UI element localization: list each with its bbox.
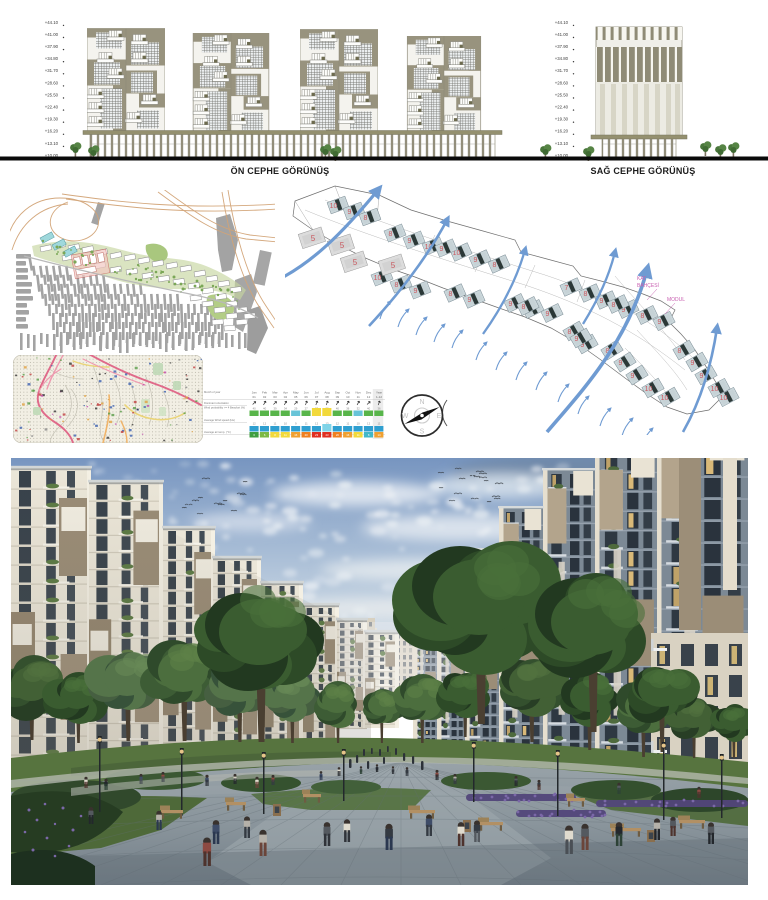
svg-text:+41.00: +41.00 <box>555 32 569 37</box>
svg-text:03: 03 <box>273 395 277 399</box>
svg-text:11: 11 <box>274 422 277 426</box>
svg-text:+19.30: +19.30 <box>45 117 59 122</box>
svg-text:12: 12 <box>367 395 371 399</box>
svg-text:+16.20: +16.20 <box>555 129 569 134</box>
svg-text:+31.70: +31.70 <box>555 68 569 73</box>
svg-text:+25.50: +25.50 <box>45 92 59 97</box>
svg-text:8: 8 <box>449 291 453 298</box>
svg-text:5: 5 <box>311 234 316 243</box>
svg-text:9: 9 <box>631 373 635 380</box>
svg-text:8: 8 <box>612 302 616 309</box>
svg-text:05: 05 <box>294 395 298 399</box>
svg-text:9: 9 <box>295 422 297 426</box>
svg-text:23: 23 <box>315 433 319 437</box>
svg-text:10: 10 <box>284 422 288 426</box>
svg-text:+44.10: +44.10 <box>555 20 569 25</box>
svg-text:Wind probability >= 4 Beaufort: Wind probability >= 4 Beaufort (%) <box>204 406 245 410</box>
svg-text:N: N <box>419 399 424 406</box>
svg-text:9: 9 <box>691 360 695 367</box>
svg-text:KAT: KAT <box>637 276 646 282</box>
svg-text:16: 16 <box>294 433 298 437</box>
svg-text:Dominant orientation: Dominant orientation <box>204 401 229 405</box>
svg-text:Month of year: Month of year <box>204 390 221 394</box>
svg-text:9: 9 <box>408 238 412 245</box>
svg-text:9: 9 <box>348 209 352 216</box>
svg-text:40: 40 <box>336 407 340 411</box>
svg-text:+34.80: +34.80 <box>45 56 59 61</box>
svg-text:Oct: Oct <box>345 391 350 395</box>
svg-text:+31.70: +31.70 <box>45 68 59 73</box>
svg-text:09: 09 <box>336 395 340 399</box>
svg-text:02: 02 <box>263 395 267 399</box>
svg-text:32: 32 <box>357 407 361 411</box>
svg-text:01: 01 <box>253 395 257 399</box>
svg-text:12: 12 <box>253 422 257 426</box>
svg-text:8: 8 <box>568 329 572 336</box>
svg-text:10: 10 <box>357 422 361 426</box>
svg-text:SAĞ CEPHE GÖRÜNÜŞ: SAĞ CEPHE GÖRÜNÜŞ <box>591 165 696 176</box>
svg-text:Aug: Aug <box>324 391 330 395</box>
svg-text:40: 40 <box>367 407 371 411</box>
svg-text:8: 8 <box>678 348 682 355</box>
svg-text:16: 16 <box>346 433 350 437</box>
svg-text:Average air temp. (°C): Average air temp. (°C) <box>204 430 231 434</box>
svg-text:Dec: Dec <box>366 391 372 395</box>
svg-text:+13.10: +13.10 <box>45 141 59 146</box>
svg-text:8: 8 <box>364 215 368 222</box>
svg-text:04: 04 <box>284 395 288 399</box>
svg-text:9: 9 <box>509 301 513 308</box>
svg-text:+41.00: +41.00 <box>45 32 59 37</box>
svg-text:+28.60: +28.60 <box>555 80 569 85</box>
svg-text:11: 11 <box>357 433 360 437</box>
svg-text:7: 7 <box>565 285 569 292</box>
svg-text:40: 40 <box>253 407 257 411</box>
svg-text:9: 9 <box>619 360 623 367</box>
svg-text:Feb: Feb <box>262 391 268 395</box>
svg-text:39: 39 <box>273 407 277 411</box>
svg-text:+16.20: +16.20 <box>45 129 59 134</box>
svg-text:S: S <box>420 429 425 436</box>
svg-text:+37.90: +37.90 <box>45 44 59 49</box>
svg-text:8: 8 <box>522 304 526 311</box>
svg-text:Jul: Jul <box>315 391 319 395</box>
svg-text:34: 34 <box>284 407 288 411</box>
svg-text:+44.10: +44.10 <box>45 20 59 25</box>
svg-text:Jan: Jan <box>252 391 257 395</box>
svg-text:10: 10 <box>374 275 382 282</box>
svg-text:8: 8 <box>493 262 497 269</box>
svg-text:Nov: Nov <box>356 391 362 395</box>
svg-text:36: 36 <box>346 407 350 411</box>
svg-text:+34.80: +34.80 <box>555 56 569 61</box>
svg-text:11: 11 <box>357 395 360 399</box>
svg-text:5: 5 <box>340 241 345 250</box>
svg-text:23: 23 <box>325 433 329 437</box>
svg-text:Sep: Sep <box>335 391 341 395</box>
svg-text:BAHÇESİ: BAHÇESİ <box>637 282 659 289</box>
svg-text:9: 9 <box>600 298 604 305</box>
svg-text:20: 20 <box>305 433 309 437</box>
svg-text:08: 08 <box>325 395 329 399</box>
svg-text:+25.50: +25.50 <box>555 92 569 97</box>
svg-text:12: 12 <box>263 422 267 426</box>
svg-text:May: May <box>293 391 299 395</box>
svg-text:8: 8 <box>395 282 399 289</box>
svg-text:12: 12 <box>315 422 319 426</box>
svg-text:9: 9 <box>575 336 579 343</box>
svg-text:12: 12 <box>367 422 371 426</box>
svg-text:10: 10 <box>711 386 719 393</box>
svg-text:Year: Year <box>376 391 382 395</box>
svg-text:ÖN CEPHE GÖRÜNÜŞ: ÖN CEPHE GÖRÜNÜŞ <box>231 166 330 176</box>
svg-text:+22.40: +22.40 <box>45 105 59 110</box>
svg-text:W: W <box>402 413 409 420</box>
svg-text:Apr: Apr <box>283 391 288 395</box>
svg-text:10: 10 <box>330 203 338 210</box>
svg-text:10: 10 <box>645 386 653 393</box>
svg-text:5: 5 <box>391 261 396 270</box>
svg-text:5: 5 <box>353 258 358 267</box>
svg-text:Jun: Jun <box>304 391 309 395</box>
svg-text:9: 9 <box>440 246 444 253</box>
svg-text:10: 10 <box>346 395 350 399</box>
svg-text:11: 11 <box>346 422 349 426</box>
svg-text:9: 9 <box>468 297 472 304</box>
svg-text:11: 11 <box>305 422 308 426</box>
svg-text:10: 10 <box>720 395 728 402</box>
svg-text:10: 10 <box>661 395 669 402</box>
svg-text:8: 8 <box>584 291 588 298</box>
svg-text:+22.40: +22.40 <box>555 105 569 110</box>
svg-text:8: 8 <box>641 313 645 320</box>
svg-text:9: 9 <box>658 319 662 326</box>
svg-text:12: 12 <box>336 422 340 426</box>
svg-text:27: 27 <box>305 407 309 411</box>
svg-text:11: 11 <box>284 433 287 437</box>
svg-text:9: 9 <box>474 257 478 264</box>
svg-text:Mar: Mar <box>272 391 277 395</box>
svg-text:+13.10: +13.10 <box>555 141 569 146</box>
svg-text:9: 9 <box>700 373 704 380</box>
svg-text:06: 06 <box>305 395 309 399</box>
svg-text:1-12: 1-12 <box>376 395 382 399</box>
svg-text:Average Wind speed (kts): Average Wind speed (kts) <box>204 418 235 422</box>
svg-text:11: 11 <box>378 422 381 426</box>
svg-text:+37.90: +37.90 <box>555 44 569 49</box>
svg-text:07: 07 <box>315 395 319 399</box>
svg-text:+19.30: +19.30 <box>555 117 569 122</box>
svg-text:9: 9 <box>414 288 418 295</box>
svg-text:MODUL: MODUL <box>667 297 685 303</box>
svg-text:36: 36 <box>377 407 381 411</box>
svg-text:+28.60: +28.60 <box>45 80 59 85</box>
svg-text:9: 9 <box>546 311 550 318</box>
svg-text:8: 8 <box>389 231 393 238</box>
svg-text:40: 40 <box>263 407 267 411</box>
svg-text:20: 20 <box>336 433 340 437</box>
svg-text:E: E <box>437 413 442 420</box>
svg-text:29: 29 <box>294 407 298 411</box>
svg-text:14: 14 <box>377 433 381 437</box>
